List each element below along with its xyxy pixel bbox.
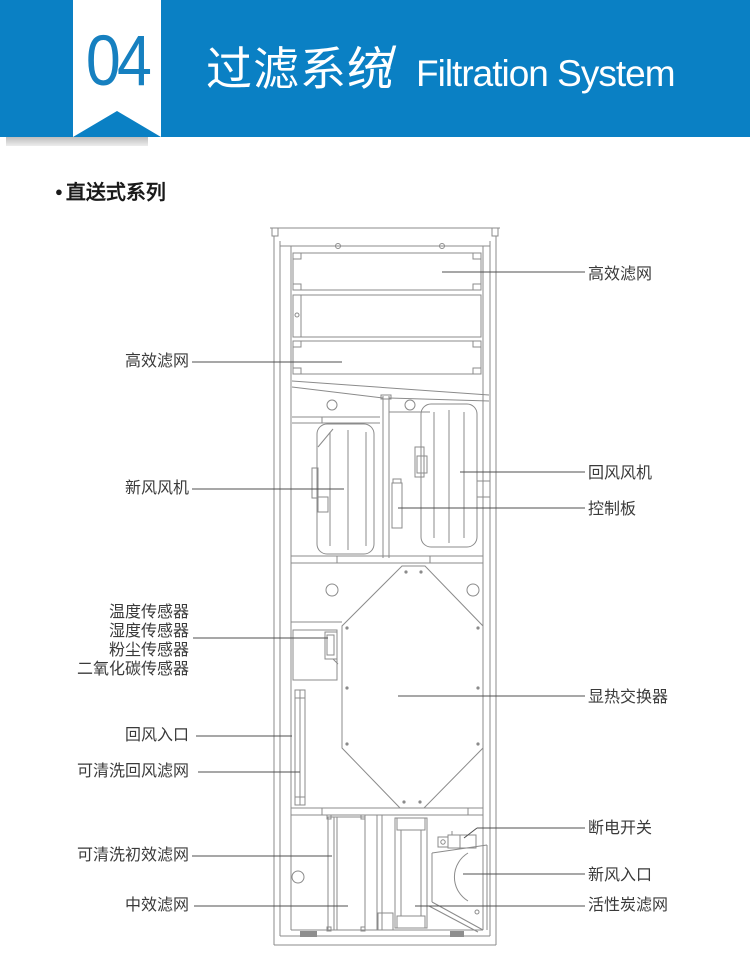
heat-exchanger-section [291,566,483,815]
catalog-page: 过滤系统 / Filtration System 04 ● 直送式系列 [0,0,750,974]
part-label: 粉尘传感器 [109,641,189,661]
part-label: 温度传感器 [109,603,189,623]
part-label: 可清洗初效滤网 [77,846,189,866]
part-label: 高效滤网 [125,352,189,372]
part-label: 活性炭滤网 [588,896,668,916]
part-label: 回风入口 [125,726,189,746]
callout-lines [192,272,585,906]
part-label: 回风风机 [588,464,652,484]
part-label: 新风风机 [125,479,189,499]
heat-exchanger-screws [345,570,479,803]
part-label: 湿度传感器 [109,622,189,642]
part-label: 中效滤网 [125,896,189,916]
bottom-section [292,815,487,932]
part-label: 可清洗回风滤网 [77,762,189,782]
part-label: 控制板 [588,500,636,520]
part-label: 新风入口 [588,866,652,886]
part-label: 高效滤网 [588,265,652,285]
fan-section [291,395,490,563]
part-label: 二氧化碳传感器 [77,660,189,680]
part-label: 显热交换器 [588,688,668,708]
top-filters [292,253,489,401]
part-label: 断电开关 [588,819,652,839]
